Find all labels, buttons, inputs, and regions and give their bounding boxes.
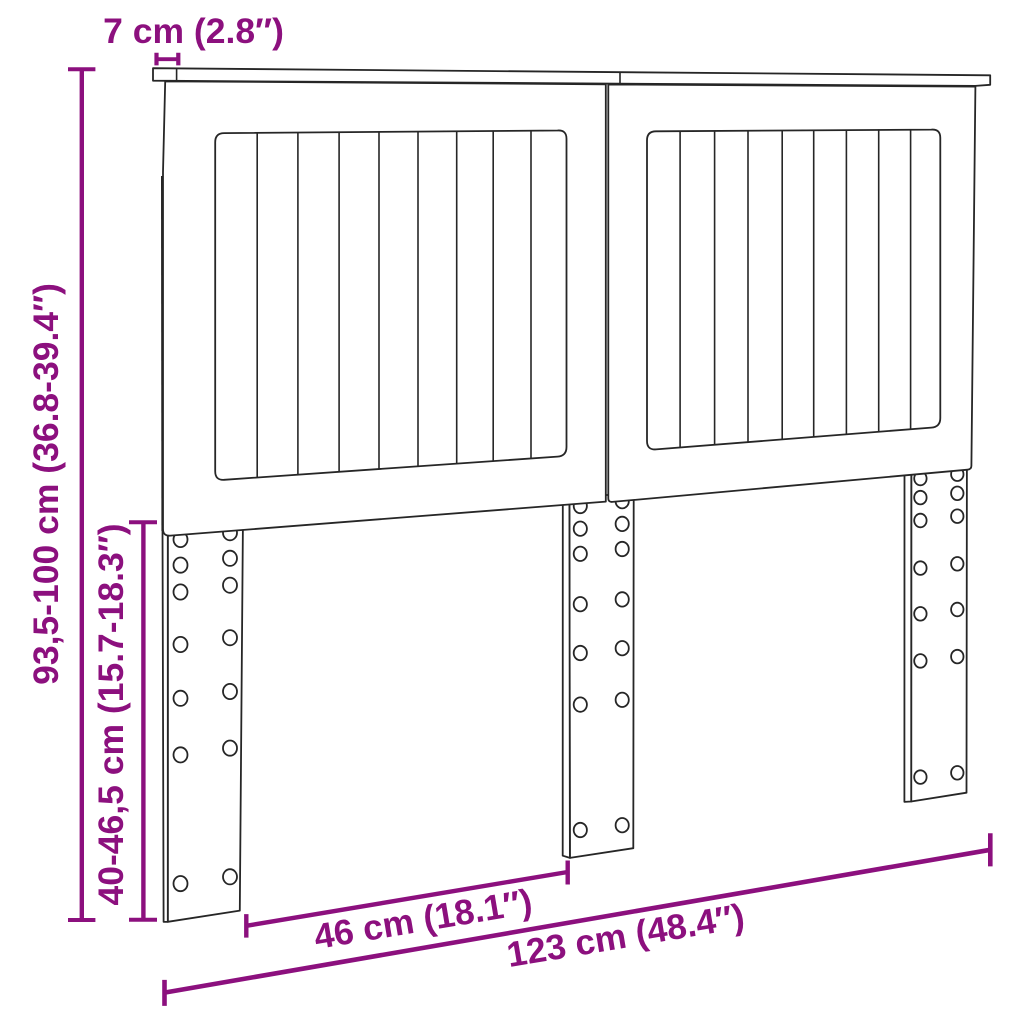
svg-text:7 cm (2.8″): 7 cm (2.8″) [103, 11, 284, 51]
svg-text:93,5-100 cm (36.8-39.4″): 93,5-100 cm (36.8-39.4″) [26, 283, 66, 685]
svg-text:40-46,5 cm (15.7-18.3″): 40-46,5 cm (15.7-18.3″) [91, 523, 131, 905]
